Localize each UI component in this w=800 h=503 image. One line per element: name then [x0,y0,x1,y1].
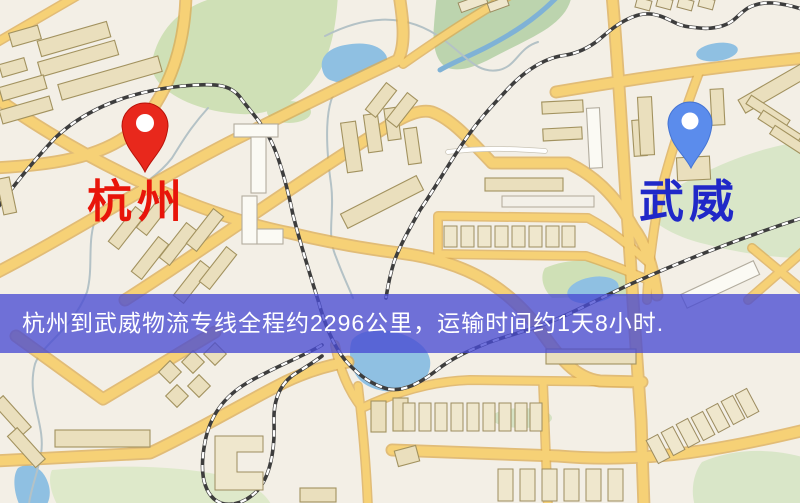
destination-pin-label: 武威 [639,177,739,227]
route-banner-text: 杭州到武威物流专线全程约2296公里，运输时间约1天8小时. [22,310,664,336]
map-canvas: 杭州 武威 杭州到武威物流专线全程约2296公里，运输时间约1天8小时. [0,0,800,503]
logistics-route-map: 杭州 武威 杭州到武威物流专线全程约2296公里，运输时间约1天8小时. [0,0,800,503]
destination-pin-hole [682,113,699,130]
origin-pin-hole [136,114,154,132]
route-banner: 杭州到武威物流专线全程约2296公里，运输时间约1天8小时. [0,294,800,353]
origin-pin-label: 杭州 [87,177,187,227]
